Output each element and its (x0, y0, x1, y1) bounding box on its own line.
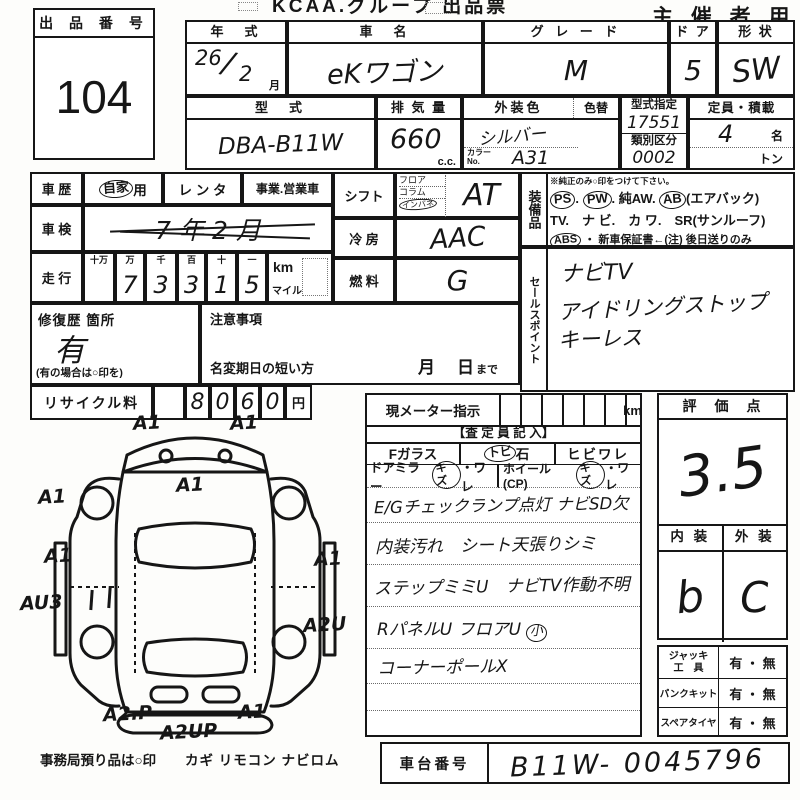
recycle-digit: 0 (216, 390, 230, 415)
car-name-cell: 車 名 eKワゴン (287, 20, 483, 96)
rename-made: まで (476, 361, 498, 377)
caution-box: 注意事項 名変期日の短い方 月 日 まで (200, 303, 520, 385)
wheel-label: ホイール(CP) (503, 460, 573, 491)
exterior-color-value: シルバー (477, 119, 547, 150)
lot-number-label: 出 品 番 号 (35, 10, 153, 38)
month-value: 2 (239, 62, 252, 86)
car-taillight-left (151, 687, 187, 702)
grade-cell: グ レ ー ド M (483, 20, 669, 96)
rule-line (367, 522, 640, 523)
car-taillight-right (203, 687, 239, 702)
color-code-value: A31 (512, 147, 549, 169)
damage-label: A1 (132, 411, 161, 434)
equipment-note: ※純正のみ○印をつけて下さい。 (550, 175, 791, 187)
puncture-kit-value: 有 ・ 無 (719, 679, 786, 707)
damage-label: A2U (302, 613, 346, 637)
shaken-label: 車 検 (30, 205, 83, 252)
mileage-header: 一 (239, 254, 265, 267)
mileage-header: 十 (208, 254, 235, 267)
mileage-col-3: 百 3 (177, 252, 206, 303)
type-designation-value: 17551 (627, 113, 681, 133)
sales-points-label: セールスポイント (522, 249, 548, 390)
damage-label: A1 (313, 547, 342, 570)
mileage-header: 万 (117, 254, 143, 267)
equip-line2: TV. ナ ビ. カ ワ. SR(サンルーフ) (550, 210, 791, 229)
exterior-value: C (738, 572, 771, 623)
auction-sheet: KCAA.グループ 出品票 主 催 者 用 出 品 番 号 104 年 式 26… (0, 0, 800, 800)
deposit-items: カギ リモコン ナビロム (185, 749, 340, 769)
tools-box: ジャッキ 工 具 有 ・ 無 パンクキット 有 ・ 無 スペアタイヤ 有 ・ 無 (657, 645, 788, 737)
rating-box: 評 価 点 3.5 内 装 外 装 b C (657, 393, 788, 640)
mileage-label: 走 行 (30, 252, 83, 303)
history-label: 車 歴 (30, 172, 83, 205)
repair-history-value: 有 (54, 325, 85, 370)
spare-tire-label: スペアタイヤ (659, 708, 719, 736)
exterior-color-label: 外装色 (464, 98, 573, 118)
displacement-value: 660 (390, 124, 442, 155)
interior-label: 内 装 (659, 526, 722, 550)
cooling-value: AAC (429, 221, 487, 256)
cooling-cell: AAC (395, 218, 520, 258)
rating-label: 評 価 点 (659, 395, 786, 420)
lot-number-box: 出 品 番 号 104 (33, 8, 155, 160)
shift-opt-inpane: インパネ (399, 197, 438, 211)
damage-label: A1 (43, 544, 72, 567)
displacement-unit: c.c. (438, 156, 456, 168)
wheel-row: ホイール(CP) キズ ・ワレ (499, 464, 640, 488)
damage-label: A1 (37, 485, 66, 508)
capacity-value: 4 (718, 120, 733, 148)
mirror-scratch-circled: キズ (431, 460, 462, 490)
car-wheel-rear-left (81, 626, 113, 658)
damage-label: AU3 (19, 591, 63, 615)
inspector-box: 現メーター指示 km 【査 定 員 記 入】 Fガラス トビ石 ヒビワレ ドアミ… (365, 393, 642, 737)
car-windshield-top (136, 523, 255, 568)
sales-point-line: アイドリングストップ (557, 286, 767, 327)
sales-points-box: セールスポイント ナビTV アイドリングストップ キーレス (520, 247, 795, 392)
displacement-label: 排 気 量 (378, 98, 460, 120)
car-name-value: eKワゴン (327, 48, 444, 91)
jack-label2: 工 具 (674, 663, 704, 675)
history-rental: レ ン タ (163, 172, 242, 205)
rule-line (367, 710, 640, 711)
mileage-digit: 3 (184, 271, 199, 299)
model-cell: 型 式 DBA-B11W (185, 96, 376, 170)
mileage-digit: 5 (244, 271, 259, 299)
mileage-col-4: 十 1 (206, 252, 237, 303)
shape-value: SW (730, 50, 782, 90)
rating-value: 3.5 (674, 434, 771, 511)
month-unit: 月 (269, 77, 280, 93)
rename-month: 月 (418, 353, 435, 378)
history-business: 事業.営業車 (242, 172, 333, 205)
mileage-digit: 7 (122, 271, 137, 299)
chassis-box: 車台番号 B11W- 0045796 (380, 742, 790, 784)
inspector-note: コーナーポールX (377, 652, 508, 679)
recycle-digit: 0 (266, 390, 280, 415)
chassis-label: 車台番号 (382, 744, 489, 782)
displacement-cell: 排 気 量 660 c.c. (376, 96, 462, 170)
damage-label: A1 (175, 473, 204, 496)
inspector-note-text: RパネルU フロアU (377, 615, 521, 640)
inspector-note: RパネルU フロアU 小 (377, 615, 547, 642)
meter-cell (499, 395, 522, 427)
repair-history-note: (有の場合は○印を) (36, 365, 123, 380)
unit-km: km (273, 259, 293, 275)
meter-cell (583, 395, 606, 427)
equip-warranty: ・ 新車保証書←(注) 後日送りのみ (584, 234, 751, 246)
year-cell: 年 式 26 / 2 月 (185, 20, 287, 96)
mileage-header: 千 (147, 254, 175, 267)
model-label: 型 式 (187, 98, 374, 120)
caution-label: 注意事項 (210, 309, 262, 328)
rule-line (367, 648, 640, 649)
repair-history-box: 修復歴 箇所 有 (有の場合は○印を) (30, 303, 200, 385)
load-unit: トン (759, 150, 783, 167)
shaken-cell: 7 年 2 月 (83, 205, 333, 252)
car-front-windshield (123, 438, 267, 472)
rule-line (367, 683, 640, 684)
equipment-box: 装備品 ※純正のみ○印をつけて下さい。 PS. PW. 純AW. AB(エアバッ… (520, 172, 795, 247)
color-change-label: 色替 (573, 98, 618, 118)
history-private-circled: 自家 (99, 178, 134, 198)
meter-cell (541, 395, 564, 427)
type-designation-cell: 型式指定 17551 類別区分 0002 (620, 96, 688, 170)
mileage-header: 百 (179, 254, 204, 267)
shift-opt-column: コラム (399, 187, 445, 199)
type-designation-label: 型式指定 (622, 98, 686, 112)
puncture-kit-label: パンクキット (659, 679, 719, 707)
history-private-suffix: 用 (133, 179, 147, 199)
grade-value: M (564, 54, 588, 87)
capacity-label: 定員・積載 (690, 98, 793, 120)
meter-stamp-box (302, 258, 328, 296)
capacity-divider (690, 147, 793, 148)
doors-cell: ド ア 5 (669, 20, 717, 96)
exterior-label: 外 装 (722, 526, 787, 550)
damage-label: A1 (237, 700, 266, 723)
interior-value: b (674, 570, 707, 624)
mileage-col-5: 一 5 (237, 252, 267, 303)
equip-ps: PS (549, 190, 576, 210)
history-private: 自家用 (83, 172, 163, 205)
sales-point-line: ナビTV (559, 254, 633, 289)
spare-tire-value: 有 ・ 無 (719, 708, 786, 736)
shift-label: シフト (333, 172, 395, 218)
classification-label: 類別区分 (622, 133, 686, 148)
mileage-unit-cell: km マイル (267, 252, 333, 303)
meter-unit: km (625, 395, 640, 427)
fuel-cell: G (395, 258, 520, 303)
year-label: 年 式 (187, 22, 285, 44)
chassis-value: B11W- 0045796 (510, 743, 766, 783)
mileage-digit: 3 (153, 271, 168, 299)
mileage-col-2: 千 3 (145, 252, 177, 303)
inspector-note: 内装汚れ シート天張りシミ (375, 529, 596, 558)
shift-cell: フロア コラム インパネ AT (395, 172, 520, 218)
equip-ab-note: (エアバック) (686, 191, 759, 206)
year-slash: / (219, 45, 236, 81)
car-diagram (35, 415, 350, 745)
car-right-doors (271, 478, 320, 706)
inspector-note-circled: 小 (525, 623, 547, 642)
shift-opt-floor: フロア (399, 175, 445, 187)
meter-cell (520, 395, 543, 427)
grade-label: グ レ ー ド (485, 22, 667, 44)
car-name-label: 車 名 (289, 22, 481, 44)
color-code-label: カラーNo. (467, 149, 497, 167)
wheel-crack-label: ・ワレ (605, 459, 640, 493)
rule-line (367, 564, 640, 565)
wheel-scratch-circled: キズ (575, 460, 606, 490)
capacity-cell: 定員・積載 4 名 トン (688, 96, 795, 170)
equip-pw: PW (582, 190, 612, 210)
car-wheel-rear-right (273, 626, 305, 658)
inspector-note: ステップミミU ナビTV作動不明 (374, 570, 630, 599)
shift-value: AT (463, 178, 500, 213)
inspector-note: E/Gチェックランプ点灯 ナビSD欠 (374, 490, 629, 518)
rename-day: 日 (457, 353, 474, 378)
equipment-label: 装備品 (522, 174, 548, 245)
model-value: DBA-B11W (217, 130, 343, 160)
deposit-note: 事務局預り品は○印 (40, 749, 156, 769)
shape-cell: 形 状 SW (717, 20, 795, 96)
mileage-col-1: 万 7 (115, 252, 145, 303)
damage-label: A2.P (102, 702, 152, 727)
shape-label: 形 状 (719, 22, 793, 44)
damage-label: A2UP (159, 720, 217, 745)
car-rear-window (144, 639, 247, 676)
capacity-unit: 名 (771, 127, 783, 144)
recycle-digit: 8 (191, 390, 205, 415)
damage-label: A1 (229, 411, 258, 434)
stamp-box (238, 2, 258, 11)
stamp-box (425, 2, 451, 14)
meter-cell (562, 395, 585, 427)
door-mirror-row: ドアミラー キズ ・ワレ (367, 464, 499, 488)
mileage-col-0: 十万 (83, 252, 115, 303)
mileage-header: 十万 (85, 254, 113, 267)
jack-value: 有 ・ 無 (719, 647, 786, 678)
mileage-digit: 1 (214, 271, 229, 299)
year-value: 26 (195, 46, 222, 70)
equip-ab: AB (659, 190, 687, 210)
car-wheel-front-right (273, 487, 305, 519)
rule-line (367, 606, 640, 607)
lot-number-value: 104 (35, 38, 153, 156)
sheet-title: KCAA.グループ 出品票 (272, 0, 508, 18)
mirror-crack-label: ・ワレ (461, 457, 497, 495)
exterior-color-cell: 外装色 色替 シルバー カラーNo. A31 (462, 96, 620, 170)
fuel-value: G (447, 264, 469, 297)
rename-deadline-label: 名変期日の短い方 (210, 358, 314, 377)
classification-value: 0002 (632, 148, 675, 168)
fuel-label: 燃 料 (333, 258, 395, 303)
unit-mile: マイル (272, 282, 302, 297)
doors-label: ド ア (671, 22, 715, 44)
doors-value: 5 (684, 54, 702, 87)
door-mirror-label: ドアミラー (370, 457, 430, 495)
sales-point-line: キーレス (558, 322, 643, 355)
equip-aw: 純AW. (619, 191, 656, 206)
cooling-label: 冷 房 (333, 218, 395, 258)
car-wheel-front-left (81, 487, 113, 519)
jack-label: ジャッキ (669, 651, 709, 663)
meter-label: 現メーター指示 (367, 395, 501, 427)
